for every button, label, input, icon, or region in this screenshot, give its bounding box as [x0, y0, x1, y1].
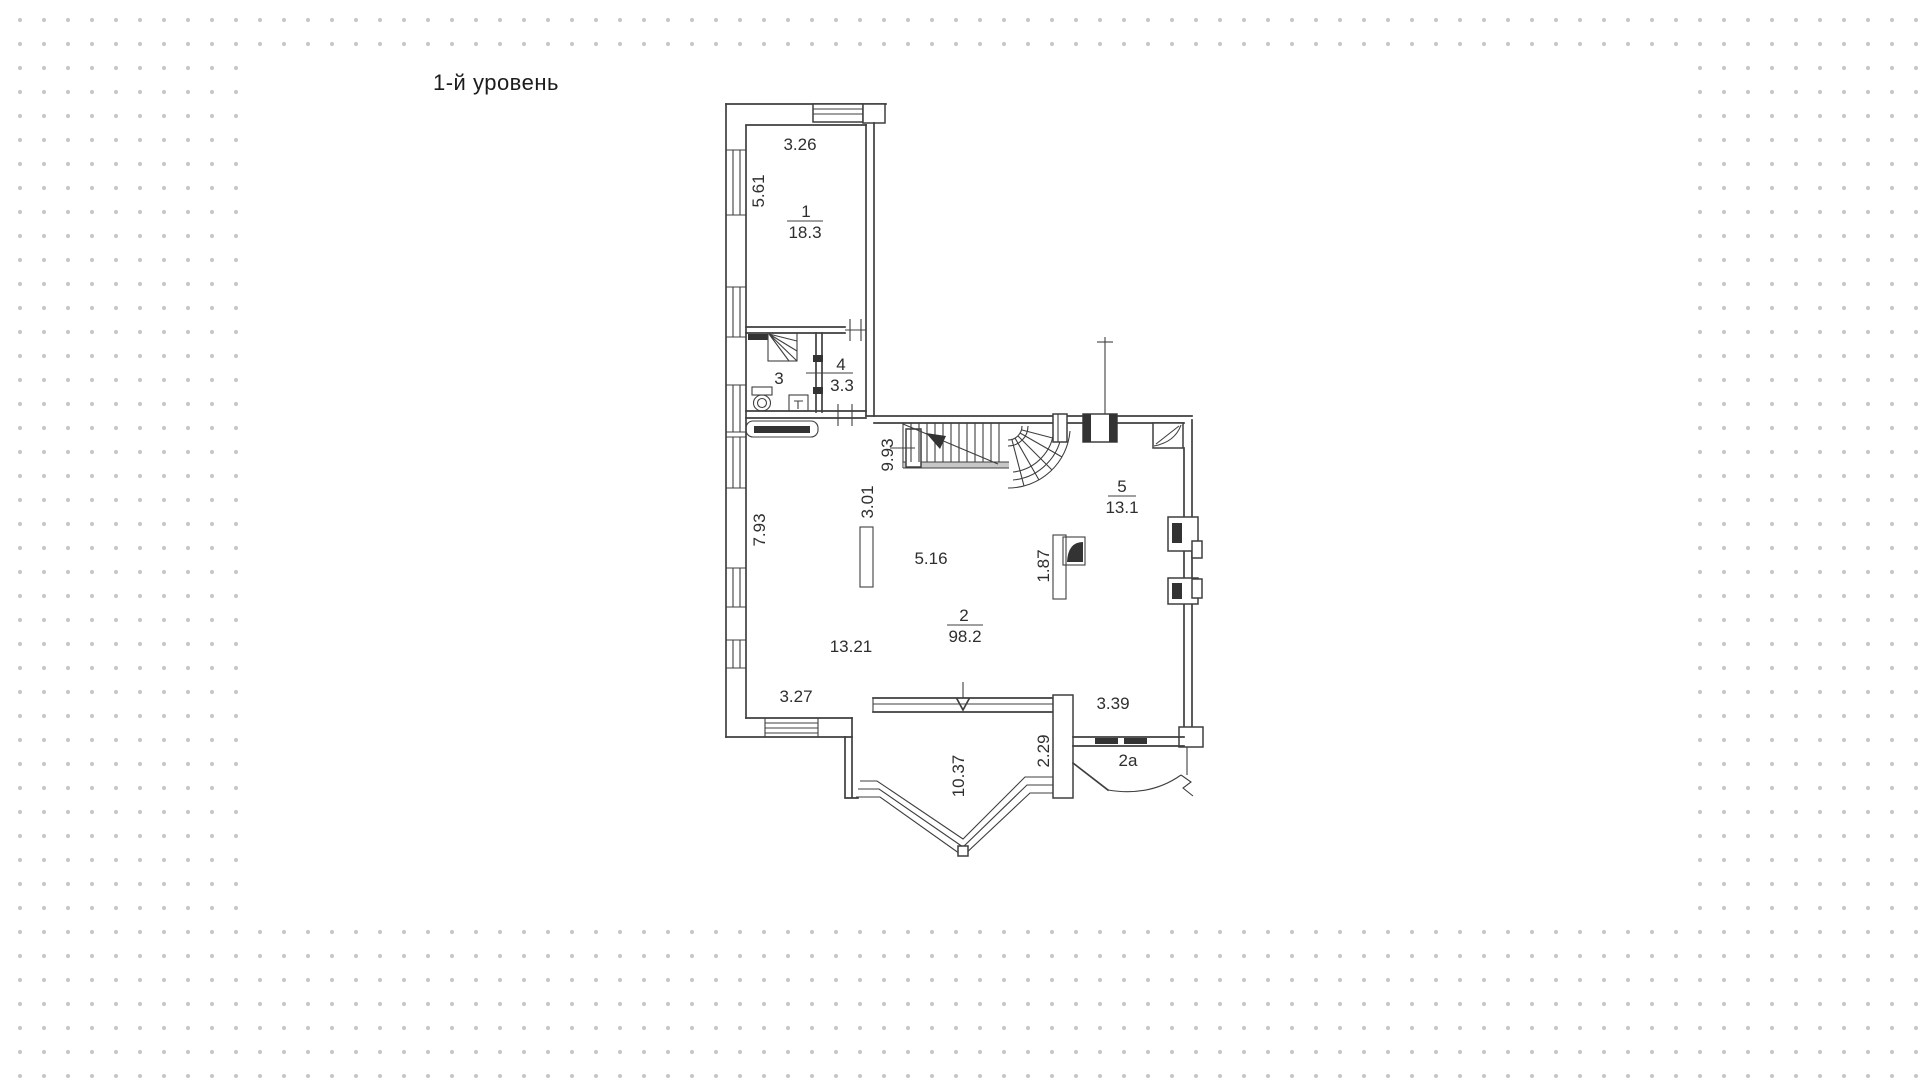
dim-room1-height: 5.61: [749, 174, 768, 207]
toilet: [752, 387, 772, 411]
room3-number: 3: [774, 369, 783, 388]
window-bottom-wall: [765, 718, 818, 737]
entry-arrow: [957, 682, 969, 710]
break-line: [1181, 775, 1193, 796]
dim-column: 3.01: [858, 485, 877, 518]
dim-bay-girth: 10.37: [949, 755, 968, 798]
room1-area: 18.3: [788, 223, 821, 242]
dim-fireplace: 1.87: [1034, 549, 1053, 582]
corner-fireplace: [1153, 423, 1183, 448]
corner-pier: [863, 104, 885, 123]
floor-level-title: 1-й уровень: [433, 70, 559, 96]
room5-number: 5: [1117, 477, 1126, 496]
fireplace: [1053, 535, 1085, 599]
interior-walls: [746, 319, 1113, 587]
room2a-number: 2а: [1119, 751, 1138, 770]
door-leaf: [748, 334, 768, 340]
door-swing-arc: [1108, 775, 1181, 792]
dim-hall-width: 5.16: [914, 549, 947, 568]
wall-niches: [1168, 517, 1202, 604]
door-leaf: [1073, 763, 1108, 790]
dim-bay-depth: 2.29: [1034, 734, 1053, 767]
floor-plan-drawing: 3.26 5.61 1 18.3 3 4 3.3 9.93 3.01 7.93 …: [720, 85, 1220, 875]
staircase: [890, 423, 1070, 488]
room4-area: 3.3: [830, 376, 854, 395]
sliding-door: [746, 421, 818, 437]
top-window: [813, 104, 863, 122]
room2-area: 98.2: [948, 627, 981, 646]
dim-stair-run: 9.93: [878, 438, 897, 471]
room1-number: 1: [801, 202, 810, 221]
room2-number: 2: [959, 606, 968, 625]
page-background: { "title": "1-й уровень", "colors": {"li…: [0, 0, 1920, 1078]
dim-top-width: 3.26: [783, 135, 816, 154]
chimney-blocks: [1053, 414, 1183, 448]
dim-entry-width: 3.39: [1096, 694, 1129, 713]
bay-apex: [958, 846, 968, 856]
dim-main-width: 13.21: [830, 637, 873, 656]
room4-number: 4: [836, 355, 845, 374]
shower: [768, 333, 797, 361]
sink: [789, 395, 808, 411]
dim-bottom-left: 3.27: [779, 687, 812, 706]
dim-left-height: 7.93: [750, 513, 769, 546]
room5-area: 13.1: [1105, 498, 1138, 517]
column: [860, 527, 873, 587]
